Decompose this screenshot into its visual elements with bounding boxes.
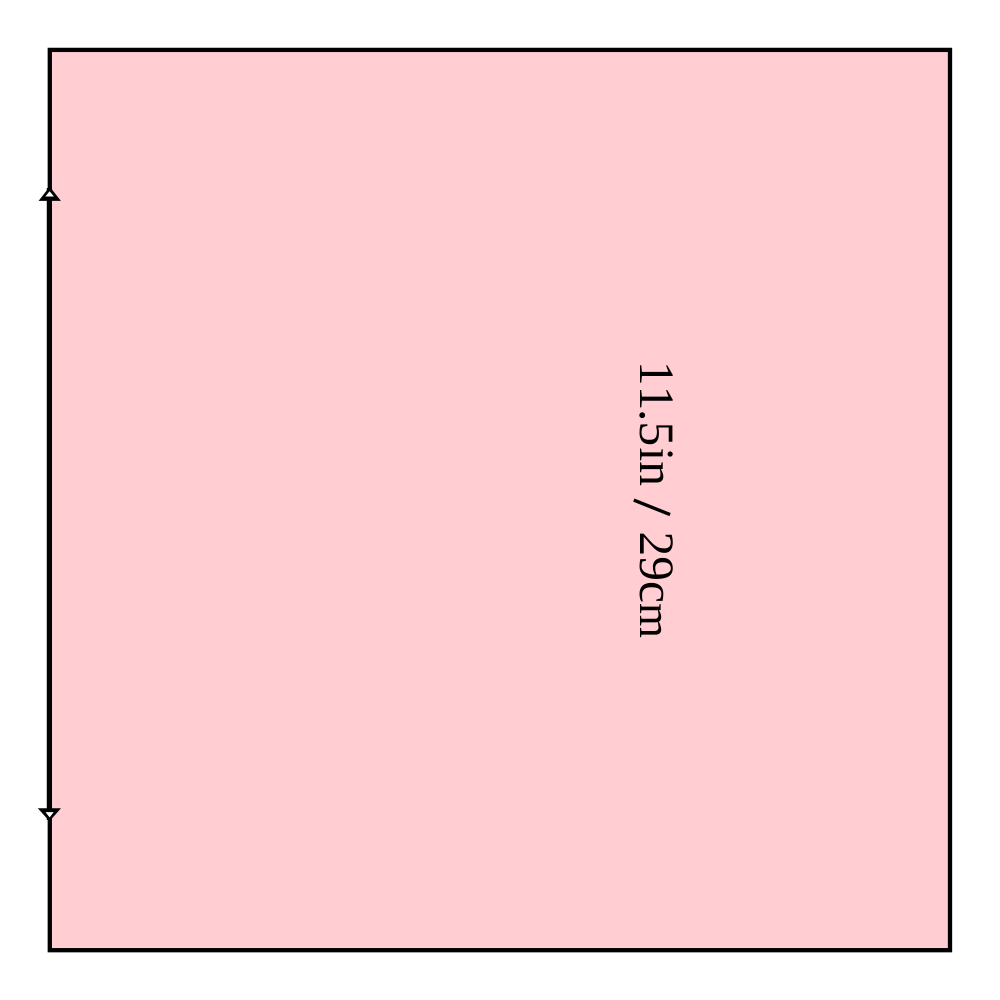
svg-text:11.5in / 29cm: 11.5in / 29cm bbox=[629, 361, 684, 638]
